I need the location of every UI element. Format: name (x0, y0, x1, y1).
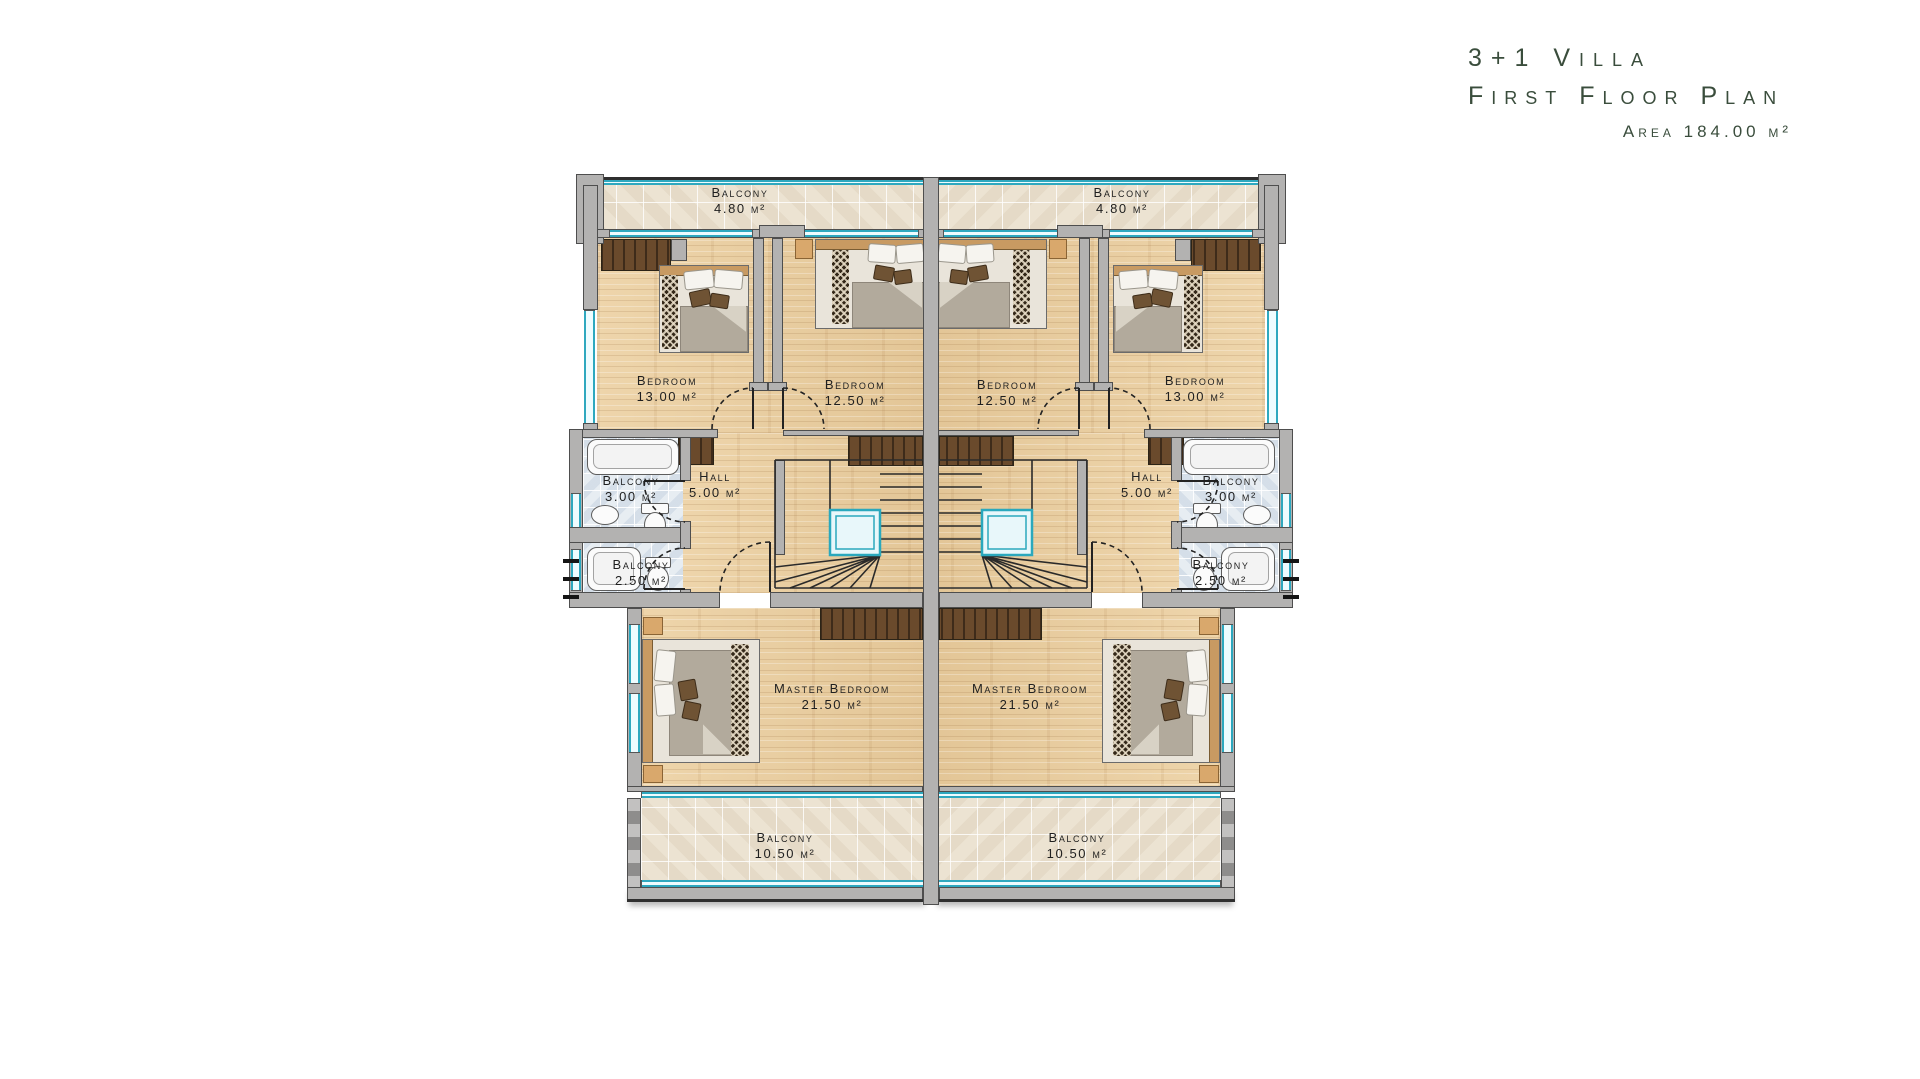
floor-plan: Balcony 4.80 m² Balcony 4.80 m² Bedroom … (583, 177, 1279, 905)
door-swings (1038, 388, 1218, 592)
utility-ticks (1283, 559, 1299, 599)
plan-subtitle: First Floor Plan (1468, 82, 1792, 111)
staircase (775, 460, 923, 588)
door-swings (644, 388, 824, 592)
plan-title: 3+1 Villa (1468, 44, 1792, 73)
stairs-and-doors-overlay (931, 177, 1299, 905)
party-wall (923, 177, 939, 905)
staircase (939, 460, 1087, 588)
plan-area: Area 184.00 m² (1468, 122, 1792, 142)
utility-ticks (563, 559, 579, 599)
villa-unit-left (583, 177, 931, 905)
stairs-and-doors-overlay (563, 177, 931, 905)
villa-unit-right (931, 177, 1279, 905)
title-block: 3+1 Villa First Floor Plan Area 184.00 m… (1468, 44, 1792, 142)
